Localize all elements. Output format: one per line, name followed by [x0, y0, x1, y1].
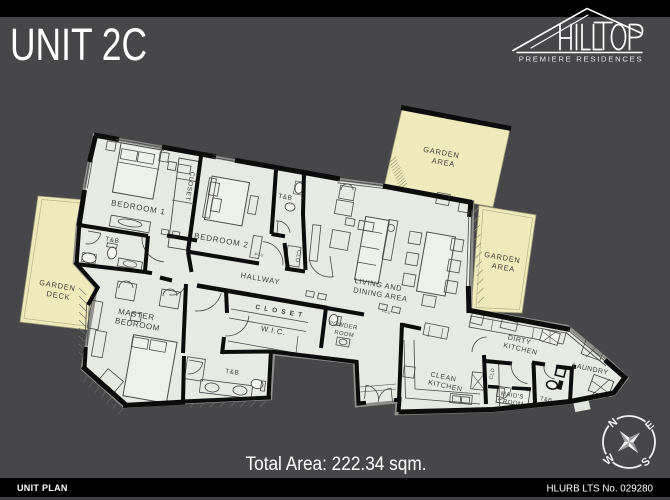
svg-text:HLURB LTS No. 029280: HLURB LTS No. 029280	[546, 484, 653, 495]
svg-text:Total Area: 222.34 sqm.: Total Area: 222.34 sqm.	[246, 454, 427, 475]
svg-text:PREMIERE RESIDENCES: PREMIERE RESIDENCES	[519, 55, 644, 64]
svg-text:UNIT PLAN: UNIT PLAN	[17, 483, 68, 493]
svg-text:UNIT 2C: UNIT 2C	[10, 19, 147, 70]
